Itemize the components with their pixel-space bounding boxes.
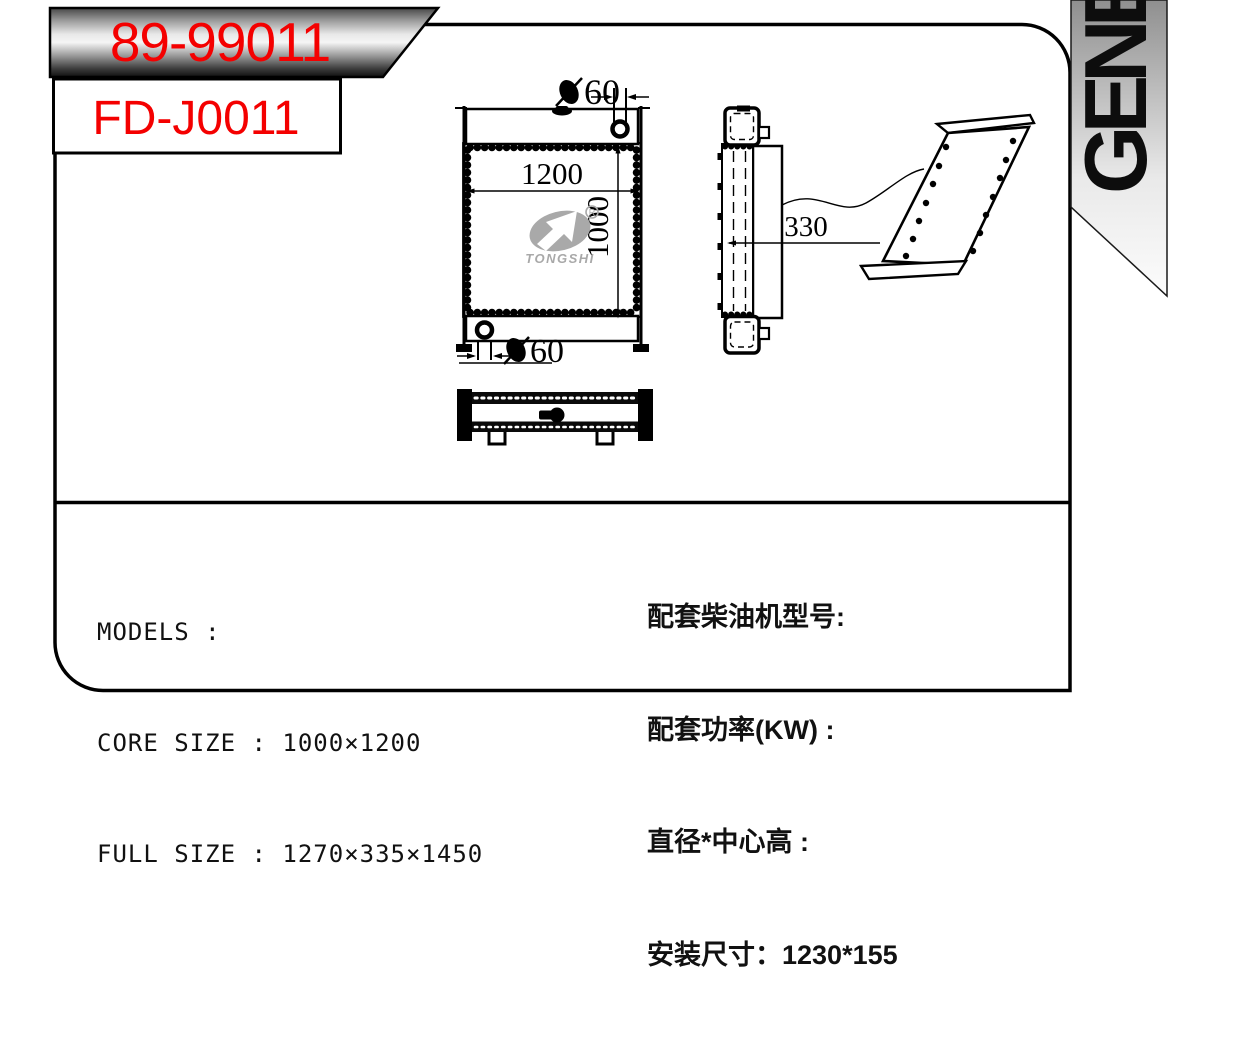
dim-depth-text: 330 <box>784 211 828 243</box>
ribbon-text: GENE <box>1066 0 1165 194</box>
spec-block-en: MODELS : CORE SIZE : 1000×1200 FULL SIZE… <box>97 540 483 947</box>
diameter-symbol-inlet <box>556 77 583 107</box>
spec-power-line: 配套功率(KW) : <box>647 712 898 750</box>
spec-models-line: MODELS : <box>97 614 483 651</box>
spec-full-size-line: FULL SIZE : 1270×335×1450 <box>97 836 483 873</box>
leader-curve <box>782 169 924 207</box>
corner-ribbon: GENE <box>1066 0 1167 296</box>
spec-mounting-size-line: 安装尺寸：1230*155 <box>647 937 898 975</box>
model-code-text: FD-J0011 <box>92 92 299 145</box>
dim-outlet-text: 60 <box>530 333 564 370</box>
brand-logo-text: TONGSHI <box>525 251 595 266</box>
spec-core-size-line: CORE SIZE : 1000×1200 <box>97 725 483 762</box>
part-number-text: 89-99011 <box>110 11 330 73</box>
registered-mark: R <box>589 208 596 218</box>
shroud-3d-view <box>861 115 1034 279</box>
spec-diameter-center-height-line: 直径*中心高 : <box>647 824 898 862</box>
dim-inlet-text: 60 <box>584 72 620 112</box>
brand-logo: R TONGSHI <box>525 205 598 266</box>
spec-block-cn: 配套柴油机型号: 配套功率(KW) : 直径*中心高 : 安装尺寸：1230*1… <box>647 524 898 1049</box>
model-code-box: FD-J0011 <box>54 79 341 153</box>
part-number-banner: 89-99011 <box>50 8 438 77</box>
bottom-view <box>457 389 653 444</box>
spec-engine-model-line: 配套柴油机型号: <box>647 599 898 637</box>
dim-core-width-text: 1200 <box>521 156 583 191</box>
catalog-page: 1200 1000 60 60 R TONGSHI <box>0 0 1240 708</box>
